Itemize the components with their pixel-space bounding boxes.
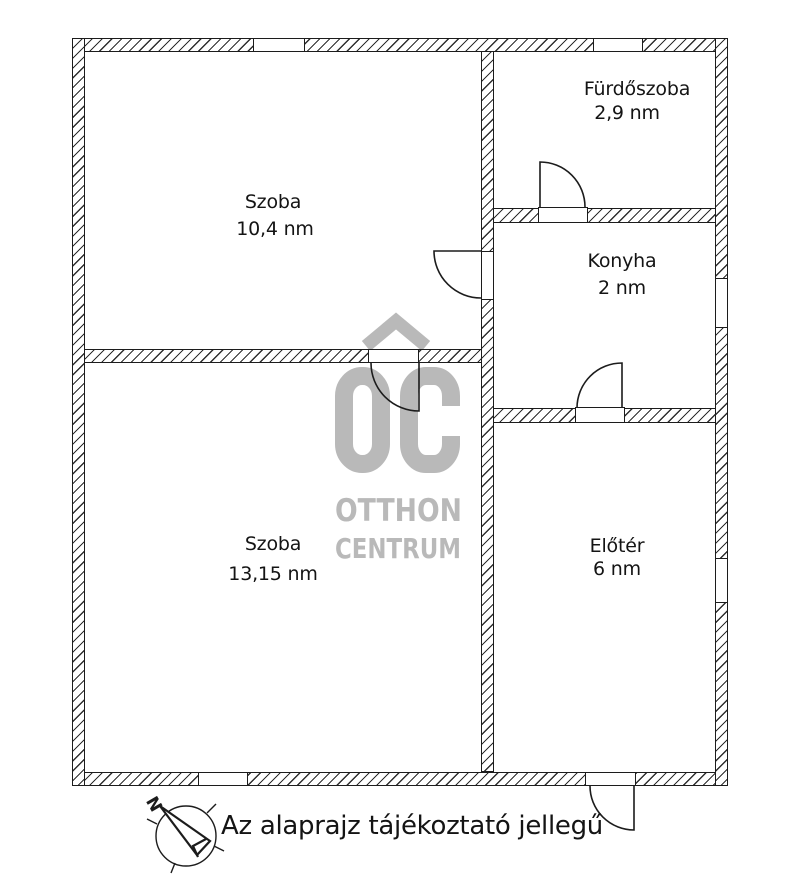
door-opening-bathroom <box>538 207 588 223</box>
otthon-centrum-watermark: OTTHON CENTRUM <box>0 0 794 880</box>
disclaimer-text: Az alaprajz tájékoztató jellegű <box>221 811 603 841</box>
window-szoba-top <box>253 38 305 52</box>
door-swing-kitchen <box>577 363 622 408</box>
door-opening-kitchen <box>575 407 625 423</box>
watermark-line1: OTTHON <box>335 493 462 529</box>
wall-exterior-right <box>715 38 728 786</box>
door-swing-szoba2 <box>371 363 419 411</box>
plan-lines-overlay: N <box>0 0 794 880</box>
compass-circle <box>156 806 216 866</box>
room-area-furdoszoba: 2,9 nm <box>594 102 660 124</box>
room-area-szoba1: 10,4 nm <box>236 218 314 240</box>
wall-szoba-divider <box>84 349 482 363</box>
room-area-szoba2: 13,15 nm <box>228 563 317 585</box>
compass-needle-notch <box>193 839 206 857</box>
room-label-szoba1: Szoba <box>245 191 301 213</box>
window-eloter-right <box>715 558 728 603</box>
compass-north-label: N <box>141 793 165 815</box>
room-area-eloter: 6 nm <box>593 558 641 580</box>
window-szoba2-bottom <box>198 772 248 786</box>
door-opening-szoba1 <box>481 251 494 300</box>
watermark-roof-icon <box>366 321 426 346</box>
watermark-letter-c <box>409 376 451 464</box>
window-bathroom-top <box>593 38 643 52</box>
floor-plan-canvas: OTTHON CENTRUM <box>0 0 794 880</box>
watermark-letter-c-notch <box>440 406 466 436</box>
compass-tick-ssw <box>171 863 175 873</box>
compass-needle <box>160 806 210 855</box>
watermark-letter-o <box>344 376 381 464</box>
door-opening-szoba2 <box>368 349 419 363</box>
room-label-szoba2: Szoba <box>245 533 301 555</box>
compass-tick-ese <box>214 846 224 851</box>
north-compass-icon: N <box>141 793 224 873</box>
wall-exterior-left <box>72 38 85 786</box>
watermark-line2: CENTRUM <box>335 532 461 565</box>
door-swing-bathroom <box>540 162 585 207</box>
window-kitchen-right <box>715 278 728 328</box>
compass-tick-wnw <box>147 819 157 824</box>
room-area-konyha: 2 nm <box>598 277 646 299</box>
wall-bathroom-kitchen <box>493 208 716 223</box>
compass-tick-ne <box>207 804 216 813</box>
room-label-konyha: Konyha <box>588 250 657 272</box>
room-label-eloter: Előtér <box>590 535 645 557</box>
door-swing-szoba1 <box>434 251 481 298</box>
room-label-furdoszoba: Fürdőszoba <box>584 78 690 100</box>
door-opening-entrance <box>585 772 636 786</box>
compass-center-dot <box>184 834 188 838</box>
